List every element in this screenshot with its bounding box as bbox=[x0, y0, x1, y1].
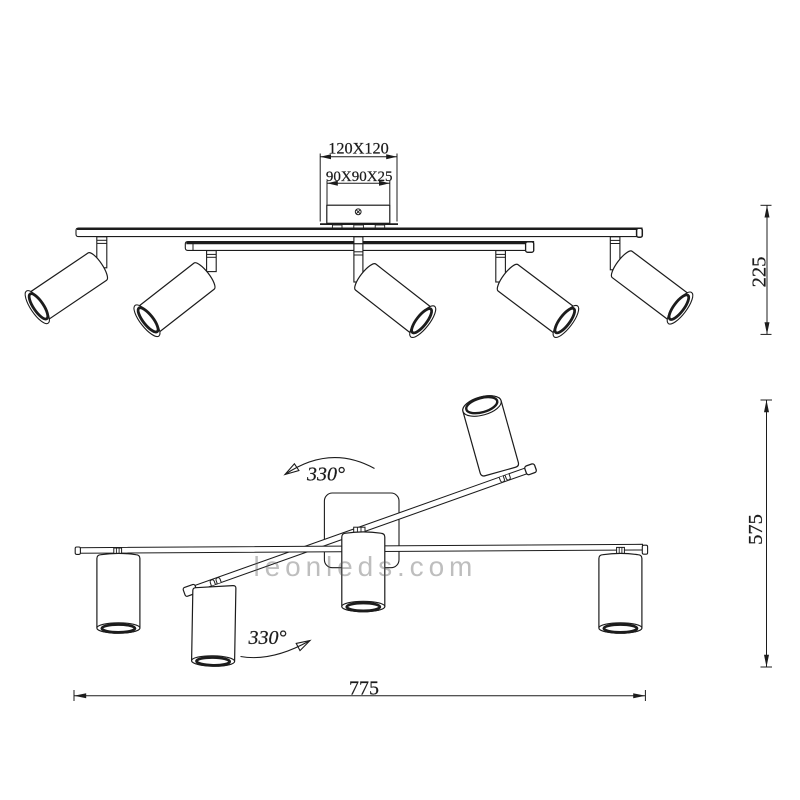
svg-text:575: 575 bbox=[745, 514, 767, 545]
svg-text:120X120: 120X120 bbox=[328, 139, 389, 158]
svg-text:330°: 330° bbox=[248, 627, 287, 649]
svg-text:225: 225 bbox=[749, 257, 771, 288]
svg-text:775: 775 bbox=[349, 677, 379, 699]
svg-text:330°: 330° bbox=[306, 464, 345, 486]
svg-text:leonleds.com: leonleds.com bbox=[254, 551, 478, 582]
